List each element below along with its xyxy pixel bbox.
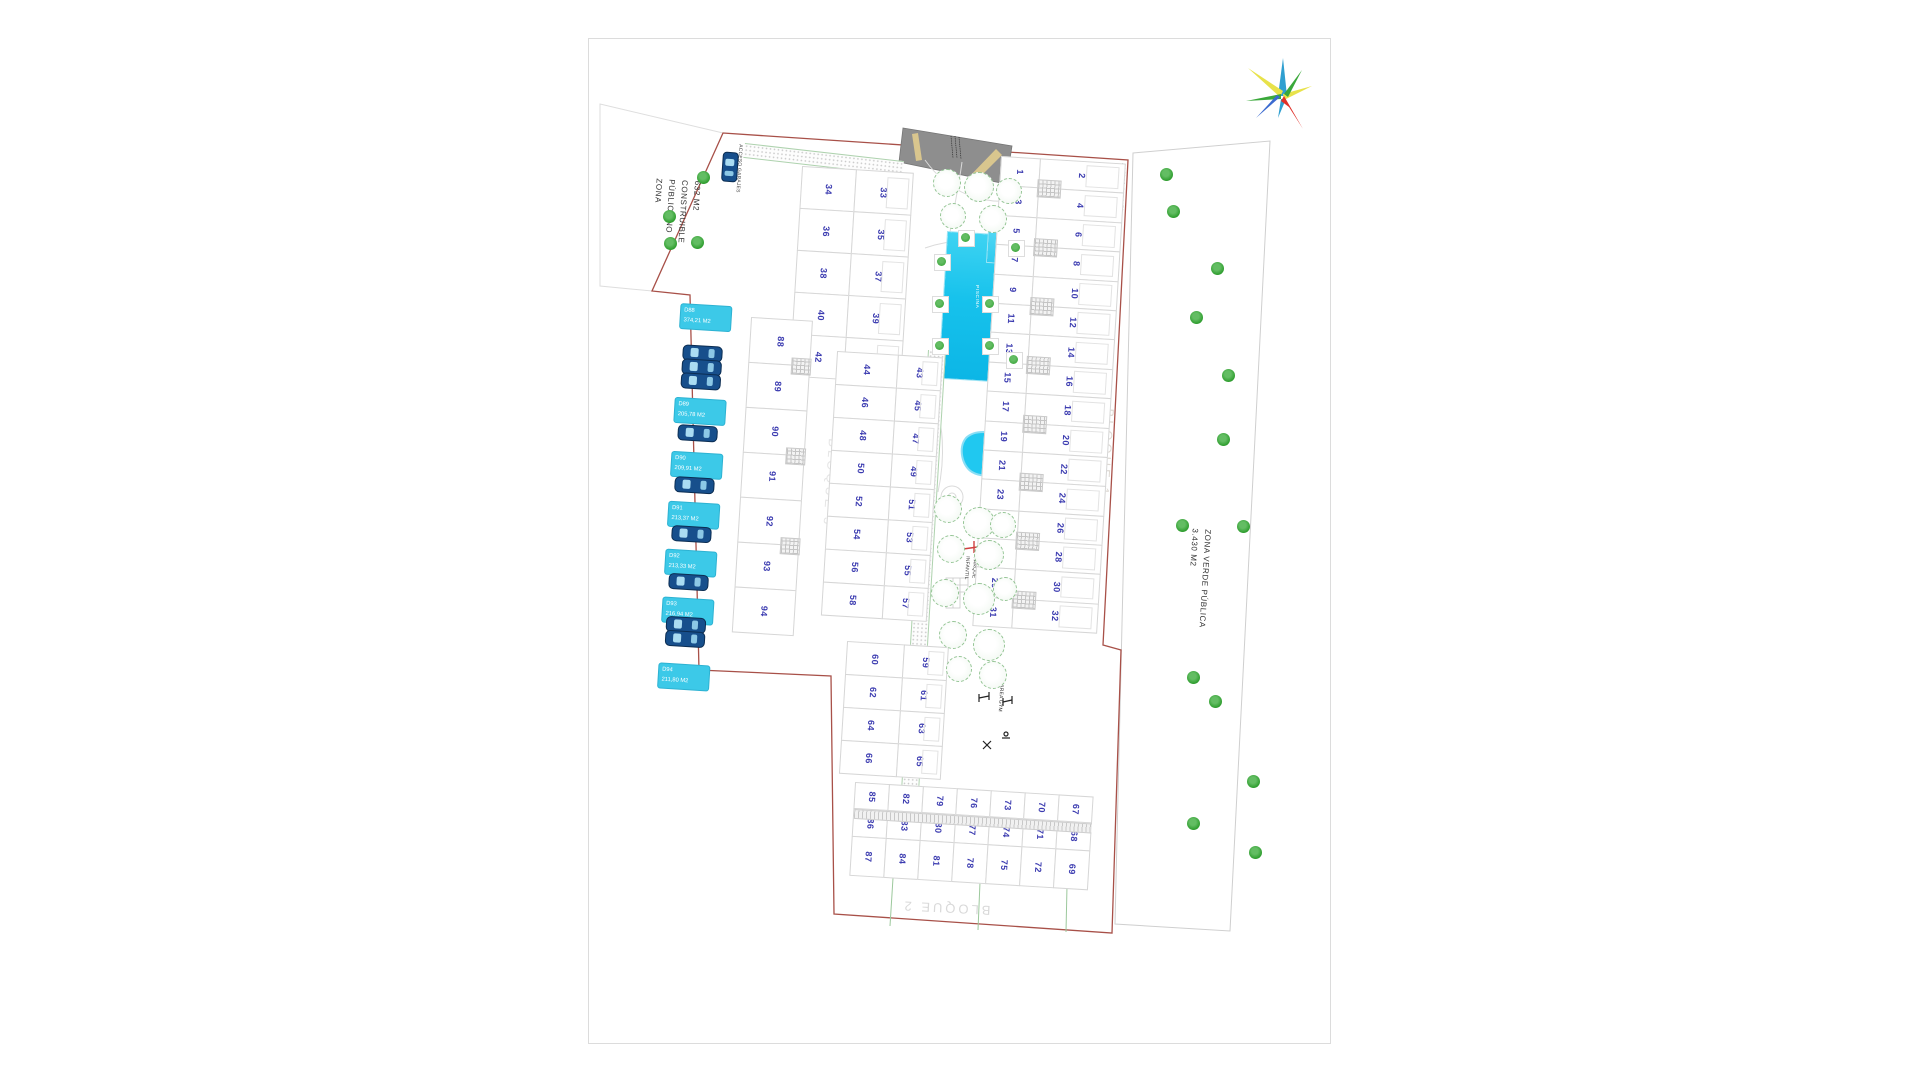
plot-number: 65: [914, 756, 925, 768]
plot-cell: 65: [896, 743, 943, 780]
plot-number: 26: [1055, 522, 1066, 534]
plot-cell: 72: [1019, 846, 1056, 888]
parking-plot-id: D89: [678, 400, 710, 409]
plot-cell: 19: [983, 420, 1025, 453]
plot-number: 92: [764, 516, 775, 528]
plot-number: 85: [866, 791, 877, 803]
stair-hatch: [791, 357, 812, 375]
stair-hatch: [780, 537, 801, 555]
tree-icon: [1247, 775, 1260, 788]
pool-tree-pad: [932, 338, 949, 355]
plot-cell: 76: [955, 788, 992, 817]
parking-plot-area: 211,80 M2: [661, 676, 693, 685]
plot-number: 49: [908, 466, 919, 478]
plot-number: 10: [1069, 288, 1080, 300]
plot-number: 9: [1008, 287, 1018, 293]
plot-row: 93: [736, 543, 800, 592]
plot-number: 22: [1059, 464, 1070, 476]
stair-hatch: [1029, 297, 1054, 316]
plot-cell: 36: [797, 208, 855, 254]
plot-number: 84: [897, 853, 908, 865]
plot-number: 66: [864, 753, 875, 765]
pool-tree-pad: [934, 254, 951, 271]
tree-icon: [1011, 243, 1020, 252]
plot-cell: 23: [979, 479, 1021, 512]
plot-number: 47: [910, 433, 921, 445]
park-tree-icon: [934, 495, 962, 523]
plot-strip: 44434645484750495251545356555857: [822, 352, 943, 622]
plot-number: 81: [931, 855, 942, 867]
plot-number: 44: [862, 364, 873, 376]
plot-number: 42: [813, 351, 824, 363]
plot-cell: 93: [735, 542, 800, 592]
plot-number: 78: [964, 857, 975, 869]
plot-number: 91: [767, 471, 778, 483]
park-tree-icon: [990, 512, 1016, 538]
parking-plot-area: 213,33 M2: [668, 562, 700, 571]
parking-plot-area: 374,21 M2: [683, 316, 715, 325]
plot-cell: 66: [839, 740, 899, 777]
plot-number: 8: [1071, 261, 1081, 267]
tree-icon: [1187, 671, 1200, 684]
plot-cell: 51: [888, 486, 935, 523]
plot-number: 32: [1050, 610, 1061, 622]
plot-cell: 69: [1053, 848, 1090, 890]
park-tree-icon: [937, 535, 965, 563]
plot-cell: 56: [823, 549, 887, 587]
tree-icon: [1211, 262, 1224, 275]
plot-cell: 91: [740, 452, 805, 502]
plot-number: 46: [860, 397, 871, 409]
park-tree-icon: [973, 629, 1005, 661]
zona-publica-label: ZONA PÚBLICA NO CONSTRUIBLE 632 M2: [648, 178, 703, 245]
parking-plot-id: D92: [669, 552, 701, 561]
tree-icon: [691, 236, 704, 249]
plot-number: 21: [997, 460, 1008, 472]
plot-cell: 73: [989, 790, 1026, 819]
park-tree-icon: [940, 203, 966, 229]
tree-icon: [1167, 205, 1180, 218]
plot-number: 79: [934, 795, 945, 807]
tree-icon: [1176, 519, 1189, 532]
plot-cell: 75: [985, 844, 1022, 886]
plot-cell: 85: [853, 782, 890, 811]
plot-cell: 53: [886, 519, 933, 556]
plot-cell: 55: [884, 552, 931, 589]
parking-plot-area: 209,91 M2: [674, 464, 706, 473]
plot-cell: 45: [894, 388, 941, 425]
park-tree-icon: [939, 621, 967, 649]
plot-cell: 38: [794, 250, 852, 296]
tree-icon: [985, 299, 994, 308]
plot-number: 4: [1075, 202, 1085, 208]
site-plan-canvas: PISCINA ZONA PÚBLICA NO CONSTRUIBLE 632 …: [0, 0, 1920, 1080]
entrance-car-icon: [721, 151, 739, 182]
pool-tree-pad: [982, 338, 999, 355]
tree-icon: [935, 341, 944, 350]
plot-number: 76: [968, 797, 979, 809]
plot-number: 24: [1057, 493, 1068, 505]
parking-plot-label: D90209,91 M2: [671, 452, 722, 479]
park-tree-icon: [964, 172, 994, 202]
plot-number: 16: [1064, 376, 1075, 388]
plot-number: 75: [998, 859, 1009, 871]
plot-number: 1: [1015, 169, 1025, 175]
plot-cell: 62: [843, 674, 903, 711]
tree-icon: [935, 299, 944, 308]
plot-number: 28: [1053, 552, 1064, 564]
stair-hatch: [1022, 414, 1047, 433]
plot-number: 69: [1066, 864, 1077, 876]
plot-number: 62: [868, 687, 879, 699]
plot-number: 37: [873, 271, 884, 283]
parking-plot-label: D88374,21 M2: [680, 304, 731, 331]
plot-cell: 54: [825, 516, 889, 554]
plot-number: 63: [916, 723, 927, 735]
park-tree-icon: [931, 579, 959, 607]
plot-number: 40: [815, 309, 826, 321]
plot-number: 15: [1002, 372, 1013, 384]
plot-number: 18: [1062, 405, 1073, 417]
plot-number: 58: [848, 595, 859, 607]
plot-number: 20: [1061, 434, 1072, 446]
plot-number: 57: [900, 598, 911, 610]
tree-icon: [1190, 311, 1203, 324]
plot-cell: 78: [951, 842, 988, 884]
plot-cell: 39: [846, 295, 907, 341]
tree-icon: [1187, 817, 1200, 830]
park-tree-icon: [996, 178, 1022, 204]
plot-number: 2: [1077, 173, 1087, 179]
tree-icon: [1222, 369, 1235, 382]
plot-cell: 87: [849, 836, 886, 878]
parking-plot-label: D89205,78 M2: [674, 398, 725, 425]
plot-number: 51: [906, 499, 917, 511]
plot-cell: 52: [827, 483, 891, 521]
parking-plot-id: D88: [684, 306, 716, 315]
plot-cell: 34: [799, 166, 857, 212]
plot-number: 12: [1068, 317, 1079, 329]
plot-cell: 48: [831, 417, 895, 455]
tree-icon: [1209, 695, 1222, 708]
plot-number: 43: [914, 367, 925, 379]
park-tree-icon: [979, 661, 1007, 689]
tree-icon: [1217, 433, 1230, 446]
tree-icon: [1249, 846, 1262, 859]
plot-cell: 81: [917, 840, 954, 882]
plot-cell: 82: [887, 784, 924, 813]
plot-number: 30: [1052, 581, 1063, 593]
plot-cell: 57: [882, 585, 929, 622]
plot-number: 34: [823, 183, 834, 195]
plot-cell: 32: [1011, 598, 1099, 634]
plot-number: 67: [1070, 803, 1081, 815]
tree-icon: [1009, 355, 1018, 364]
south-block: 8582797673706786838077747168878481787572…: [850, 783, 1093, 890]
plot-number: 90: [770, 426, 781, 438]
plot-number: 73: [1002, 799, 1013, 811]
plot-number: 6: [1073, 232, 1083, 238]
plot-cell: 60: [845, 641, 905, 678]
tree-icon: [697, 171, 710, 184]
plot-cell: 35: [851, 211, 912, 257]
parque-infantil-line2: INFANTIL: [963, 556, 972, 580]
plot-number: 33: [878, 187, 889, 199]
plot-row: 94: [733, 587, 797, 636]
plot-cell: 79: [921, 786, 958, 815]
stair-hatch: [1033, 238, 1058, 257]
plot-number: 89: [773, 381, 784, 393]
pool-tree-pad: [932, 296, 949, 313]
tree-icon: [664, 237, 677, 250]
stair-hatch: [1026, 356, 1051, 375]
pool-tree-pad: [1008, 240, 1025, 257]
plot-cell: 44: [835, 351, 899, 389]
tree-icon: [663, 210, 676, 223]
tree-icon: [985, 341, 994, 350]
park-tree-icon: [993, 577, 1017, 601]
parked-car-icon: [668, 573, 709, 591]
plot-number: 39: [871, 312, 882, 324]
pool-tree-pad: [1006, 352, 1023, 369]
plot-cell: 89: [746, 362, 811, 412]
plot-number: 52: [854, 496, 865, 508]
park-tree-icon: [933, 169, 961, 197]
plot-number: 14: [1066, 346, 1077, 358]
plot-cell: 46: [833, 384, 897, 422]
parked-car-icon: [665, 630, 706, 648]
plot-row: 89: [747, 363, 811, 412]
plot-number: 70: [1036, 801, 1047, 813]
parking-plot-area: 213,37 M2: [671, 514, 703, 523]
tree-icon: [1237, 520, 1250, 533]
plot-cell: 64: [841, 707, 901, 744]
plot-number: 82: [900, 793, 911, 805]
plot-number: 11: [1006, 313, 1017, 324]
tree-icon: [937, 257, 946, 266]
stair-hatch: [1019, 473, 1044, 492]
parking-plot-area: 205,78 M2: [678, 410, 710, 419]
plot-cell: 50: [829, 450, 893, 488]
parked-car-icon: [680, 372, 721, 390]
plot-cell: 58: [821, 582, 885, 620]
plot-cell: 67: [1057, 794, 1094, 823]
park-tree-icon: [979, 205, 1007, 233]
plot-cell: 43: [896, 355, 943, 392]
plot-cell: 33: [853, 169, 914, 215]
plot-number: 61: [918, 690, 929, 702]
plot-row: 5857: [822, 583, 929, 622]
plot-number: 19: [999, 431, 1010, 443]
plot-cell: 63: [898, 710, 945, 747]
parking-plot-id: D90: [675, 454, 707, 463]
park-tree-icon: [974, 540, 1004, 570]
plot-strip: 6059626164636665: [840, 642, 949, 780]
tree-icon: [961, 233, 970, 242]
plot-cell: 70: [1023, 792, 1060, 821]
plot-number: 38: [818, 267, 829, 279]
plot-cell: 49: [890, 453, 937, 490]
plot-row: 91: [741, 453, 805, 502]
parking-plot-id: D94: [662, 666, 694, 675]
plot-number: 88: [775, 336, 786, 348]
stair-hatch: [1037, 180, 1062, 199]
tree-icon: [1160, 168, 1173, 181]
stair-hatch: [1015, 532, 1040, 551]
parking-plot-id: D91: [672, 504, 704, 513]
plot-row: 6665: [840, 741, 943, 780]
plot-number: 50: [856, 463, 867, 475]
plot-cell: 17: [985, 391, 1027, 424]
plot-cell: 47: [892, 421, 939, 458]
park-tree-icon: [963, 583, 995, 615]
plot-number: 17: [1000, 401, 1011, 413]
plot-number: 64: [866, 720, 877, 732]
plot-number: 93: [762, 561, 773, 573]
stair-hatch: [785, 447, 806, 465]
plot-number: 35: [876, 229, 887, 241]
plot-cell: 37: [848, 253, 909, 299]
pool-label: PISCINA: [975, 285, 980, 308]
plot-number: 7: [1010, 257, 1020, 263]
plot-number: 59: [920, 657, 931, 669]
plot-cell: 61: [900, 677, 947, 714]
plot-number: 48: [858, 430, 869, 442]
plot-number: 72: [1032, 861, 1043, 873]
plot-number: 36: [820, 225, 831, 237]
plot-number: 53: [904, 532, 915, 544]
plot-number: 60: [870, 654, 881, 666]
plot-number: 55: [902, 565, 913, 577]
plot-number: 23: [995, 489, 1006, 501]
plot-number: 56: [850, 562, 861, 574]
pool-tree-pad: [958, 230, 975, 247]
plot-cell: 59: [902, 644, 949, 681]
parked-car-icon: [674, 476, 715, 494]
parked-car-icon: [671, 525, 712, 543]
plot-cell: 84: [883, 838, 920, 880]
pool-tree-pad: [982, 296, 999, 313]
plot-number: 87: [863, 851, 874, 863]
plot-number: 5: [1011, 228, 1021, 234]
plot-number: 45: [912, 400, 923, 412]
plot-number: 94: [759, 605, 770, 617]
plot-number: 54: [852, 529, 863, 541]
parking-plot-id: D93: [666, 600, 698, 609]
parking-plot-label: D94211,80 M2: [658, 663, 709, 690]
plot-cell: 21: [981, 449, 1023, 482]
park-tree-icon: [946, 656, 972, 682]
plot-cell: 94: [732, 586, 797, 636]
parked-car-icon: [677, 424, 718, 442]
